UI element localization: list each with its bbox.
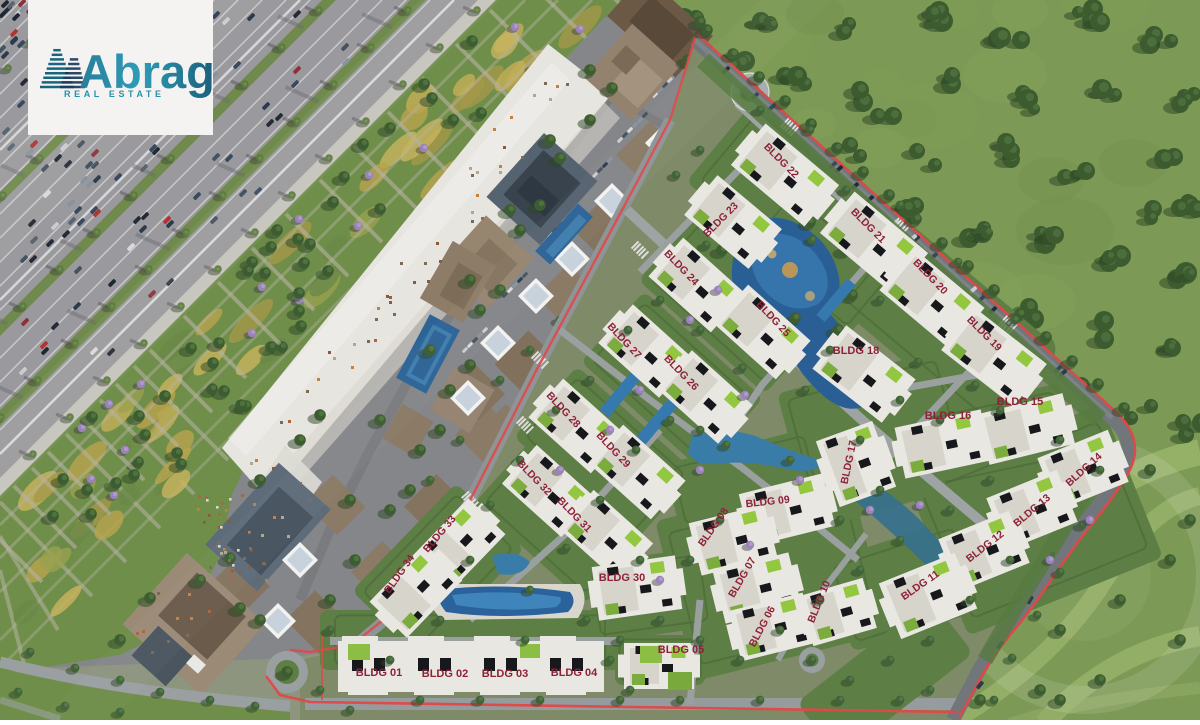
svg-text:BLDG 01: BLDG 01 <box>356 667 402 679</box>
svg-text:BLDG 15: BLDG 15 <box>997 396 1043 408</box>
svg-text:BLDG 03: BLDG 03 <box>482 668 528 680</box>
svg-text:BLDG 05: BLDG 05 <box>658 644 704 656</box>
svg-text:BLDG 04: BLDG 04 <box>551 667 598 679</box>
svg-text:BLDG 16: BLDG 16 <box>925 410 971 422</box>
svg-text:BLDG 02: BLDG 02 <box>422 668 468 680</box>
svg-text:REAL ESTATE: REAL ESTATE <box>64 89 165 99</box>
svg-text:BLDG 30: BLDG 30 <box>599 572 645 584</box>
svg-text:BLDG 18: BLDG 18 <box>833 345 879 357</box>
